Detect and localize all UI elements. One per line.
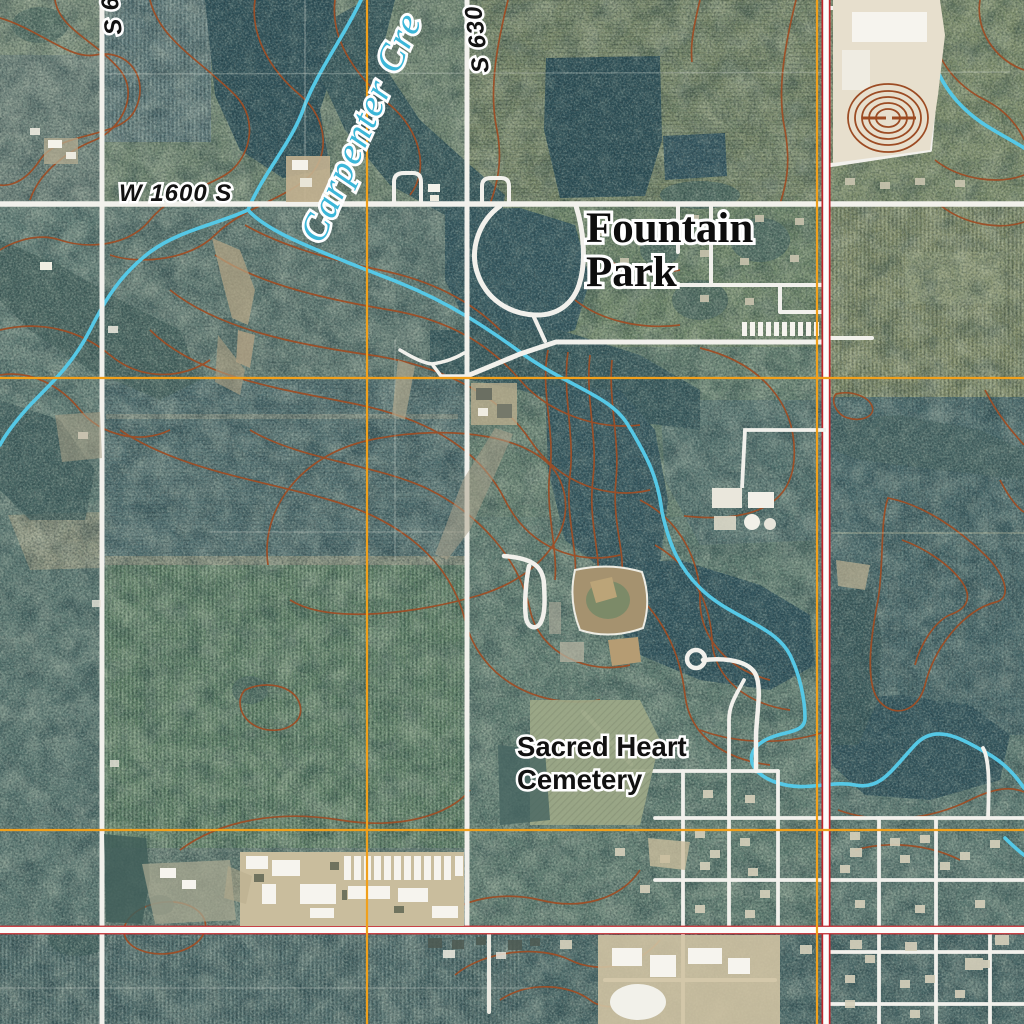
svg-text:Park: Park (586, 249, 677, 296)
svg-text:Sacred Heart: Sacred Heart (517, 731, 687, 762)
svg-text:W 1600 S: W 1600 S (119, 180, 232, 207)
svg-text:Fountain: Fountain (586, 205, 753, 252)
svg-text:Cemetery: Cemetery (517, 764, 643, 795)
